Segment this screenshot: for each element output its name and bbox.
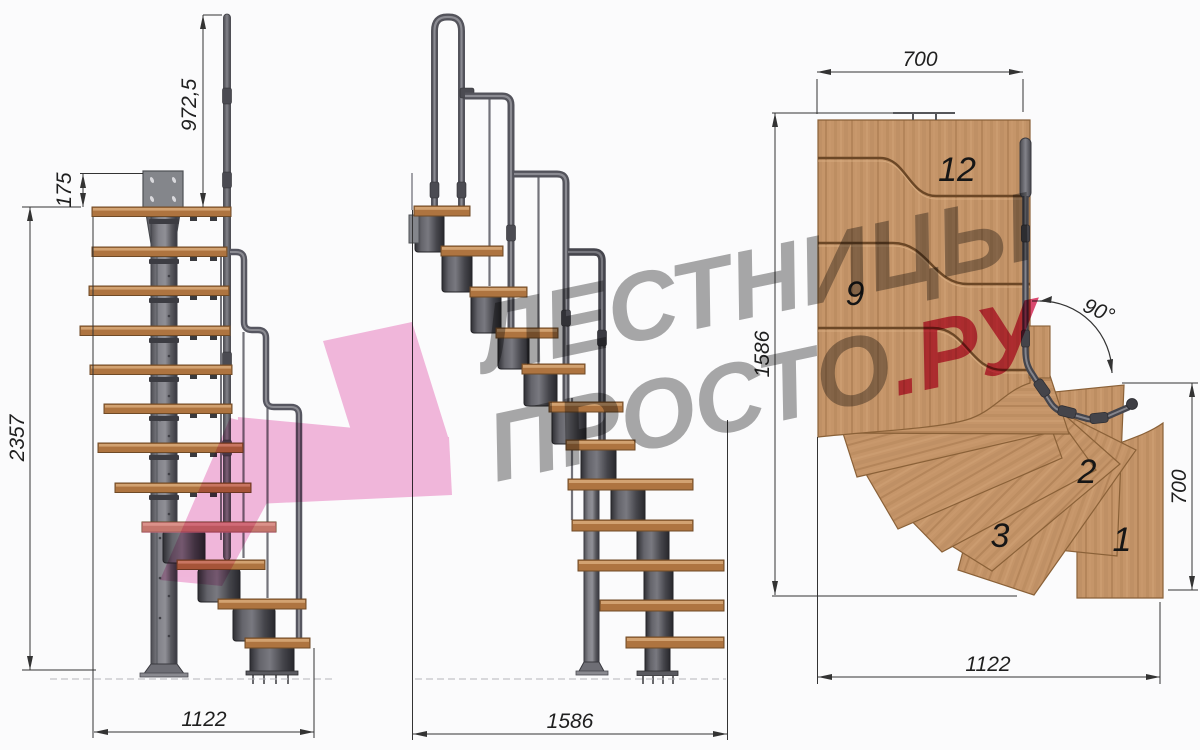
svg-text:2: 2: [1077, 453, 1097, 491]
svg-text:700: 700: [902, 48, 937, 71]
svg-text:1586: 1586: [547, 710, 594, 733]
svg-text:175: 175: [53, 172, 76, 207]
svg-text:700: 700: [1168, 469, 1191, 504]
svg-text:972,5: 972,5: [178, 78, 201, 131]
svg-text:1122: 1122: [181, 708, 226, 731]
svg-text:2357: 2357: [6, 413, 29, 462]
svg-text:1: 1: [1113, 521, 1132, 559]
svg-text:1122: 1122: [965, 653, 1010, 676]
svg-text:3: 3: [991, 517, 1010, 555]
